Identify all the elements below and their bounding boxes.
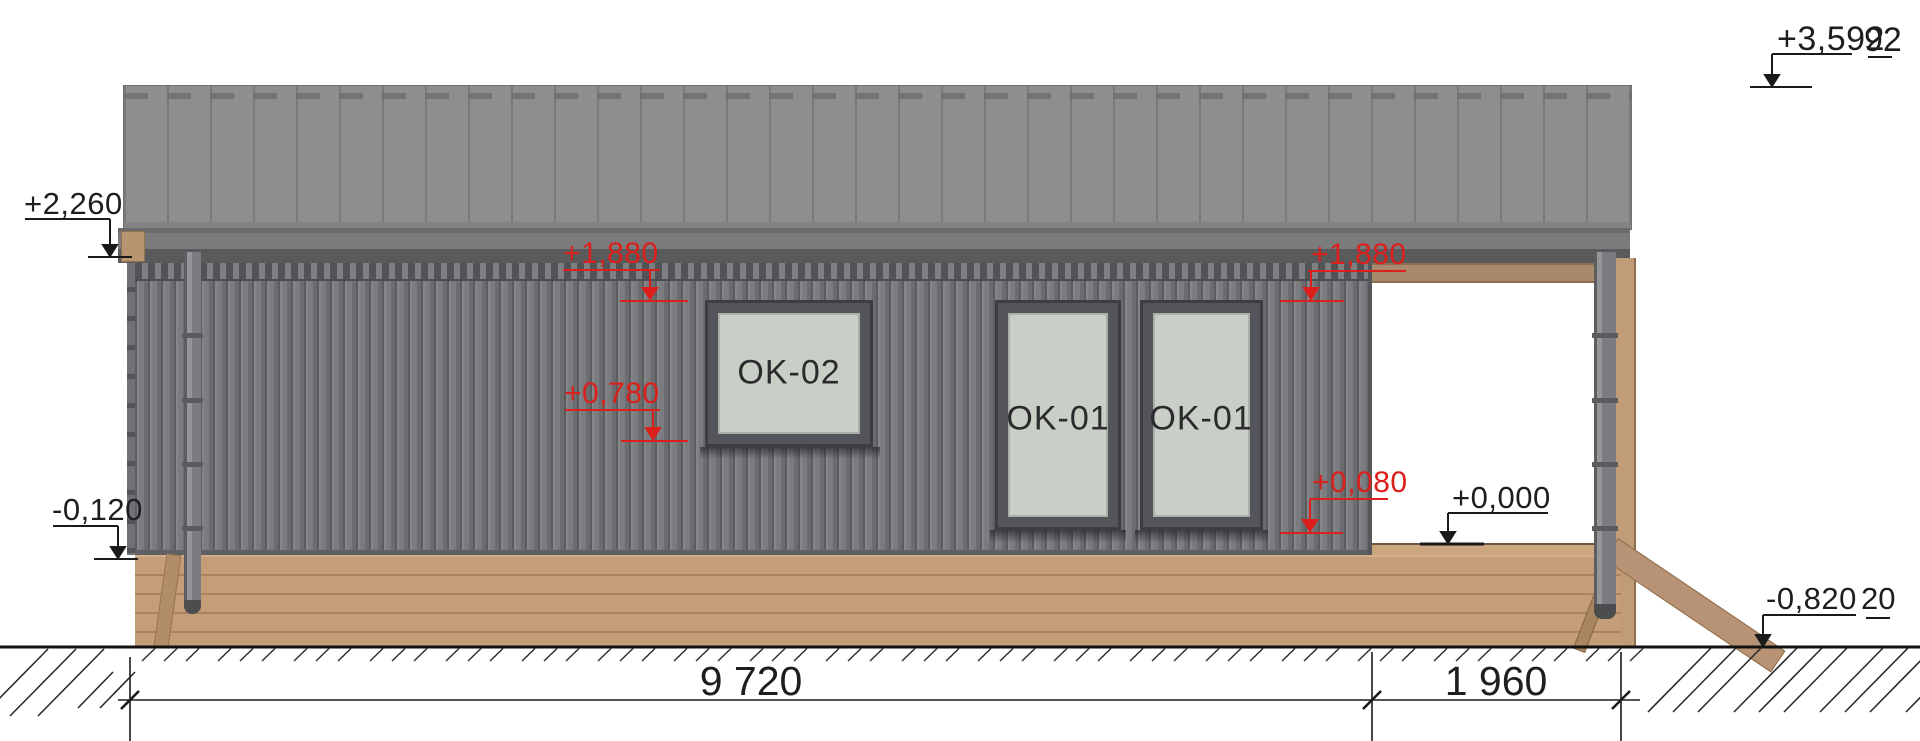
level-label-window-head-left: +1,880 bbox=[563, 237, 659, 271]
level-label-window-sill-left: +0,780 bbox=[564, 377, 660, 411]
timber-skirt-base bbox=[135, 555, 1621, 648]
level-label-floor: +0,000 bbox=[1452, 480, 1551, 516]
dim-tick bbox=[121, 691, 139, 709]
level-label-ground-fragment: 20 bbox=[1861, 581, 1895, 617]
level-label-window-head-right: +1,880 bbox=[1311, 238, 1407, 272]
dimension-label-main: 9 720 bbox=[700, 658, 803, 705]
downspout-left bbox=[184, 252, 201, 604]
downspout-right bbox=[1594, 252, 1616, 608]
dim-tick bbox=[1612, 691, 1630, 709]
window-label-ok-01-a: OK-01 bbox=[1006, 400, 1109, 439]
cladding-top-tabs bbox=[135, 263, 1368, 279]
downspout-right-cap bbox=[1594, 604, 1616, 619]
window-label-ok-02: OK-02 bbox=[737, 354, 840, 393]
cladding-top-rail bbox=[135, 279, 1368, 281]
ground-hatch bbox=[0, 648, 1920, 716]
dimension-chain bbox=[118, 652, 1640, 741]
roof-seam-dashes bbox=[124, 93, 1631, 99]
porch-beam bbox=[1372, 263, 1630, 283]
window-ok-01-a-sill-shadow bbox=[990, 530, 1126, 543]
level-label-ridge-fragment: 92 bbox=[1864, 21, 1902, 60]
window-ok-02-sill-shadow bbox=[700, 447, 880, 459]
purlin-end-left bbox=[121, 231, 145, 262]
dim-tick bbox=[1363, 691, 1381, 709]
roof bbox=[123, 85, 1632, 230]
facade-elevation-drawing: +3,592 92 +2,260 -0,120 +0,000 -0,820 20… bbox=[0, 0, 1920, 741]
window-ok-01-b-sill-shadow bbox=[1135, 530, 1268, 543]
window-label-ok-01-b: OK-01 bbox=[1149, 400, 1252, 439]
level-label-wall-base: -0,120 bbox=[52, 492, 143, 528]
level-label-window-sill-right: +0,080 bbox=[1312, 466, 1408, 500]
level-label-ground: -0,820 bbox=[1766, 581, 1857, 617]
dimension-label-porch: 1 960 bbox=[1445, 658, 1548, 705]
level-label-eave: +2,260 bbox=[24, 186, 123, 222]
